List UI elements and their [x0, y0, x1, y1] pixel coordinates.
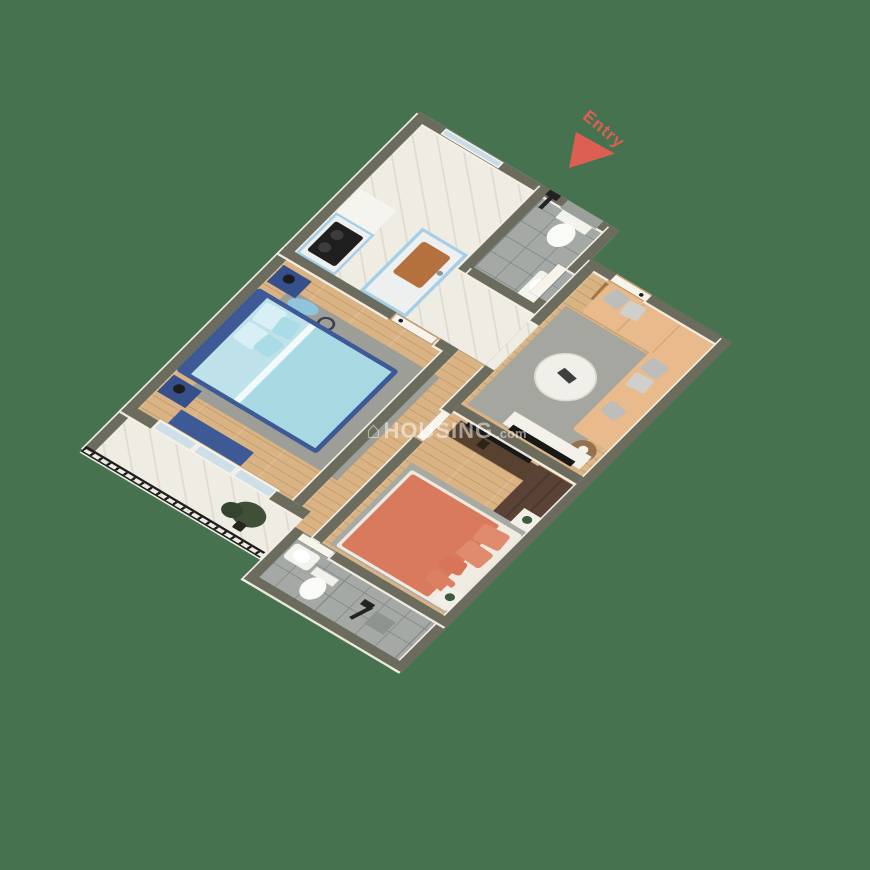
floorplan-render: Entry ⌂ HOUSING .com [0, 0, 870, 870]
watermark: ⌂ HOUSING .com [366, 418, 527, 444]
watermark-suffix: .com [496, 426, 526, 441]
floor-plan [62, 112, 761, 673]
watermark-brand: HOUSING [384, 418, 494, 444]
entry-label-group: Entry [585, 104, 633, 124]
house-icon: ⌂ [366, 419, 381, 443]
